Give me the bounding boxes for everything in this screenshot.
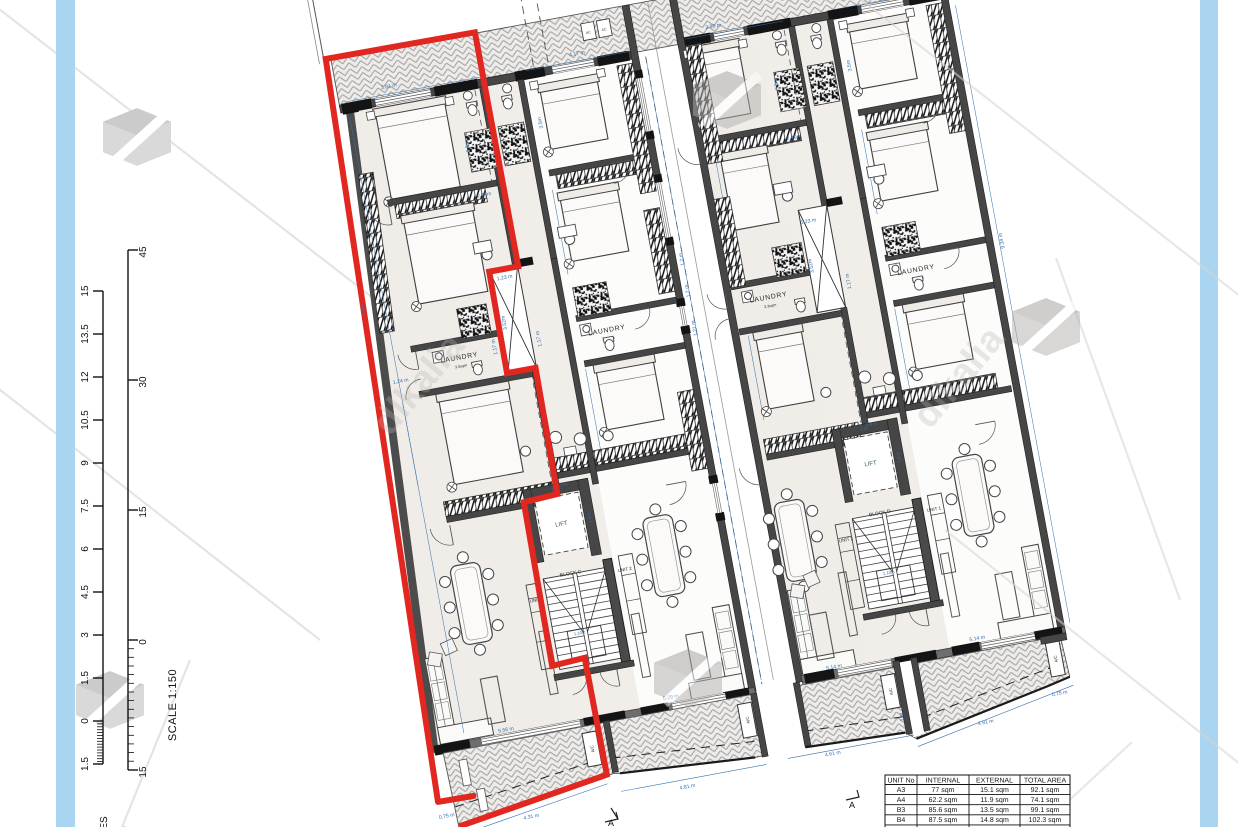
svg-text:12: 12	[80, 371, 91, 383]
svg-text:45: 45	[138, 246, 149, 258]
svg-text:A: A	[849, 800, 855, 810]
svg-text:4.5: 4.5	[80, 585, 91, 599]
svg-text:0: 0	[80, 718, 91, 724]
svg-text:74.1 sqm: 74.1 sqm	[1031, 797, 1060, 804]
svg-text:11.9 sqm: 11.9 sqm	[980, 797, 1008, 804]
svg-text:SCALE 1:150: SCALE 1:150	[167, 669, 179, 741]
svg-text:30: 30	[138, 376, 149, 388]
svg-text:14.8 sqm: 14.8 sqm	[980, 817, 1009, 824]
svg-text:A4: A4	[897, 797, 906, 804]
svg-text:15: 15	[138, 506, 149, 518]
svg-text:3: 3	[80, 632, 91, 638]
svg-text:METRES: METRES	[99, 816, 110, 827]
svg-text:EXTERNAL: EXTERNAL	[976, 777, 1013, 784]
svg-text:0: 0	[138, 639, 149, 645]
svg-text:1.5: 1.5	[80, 757, 91, 771]
svg-text:TOTAL AREA: TOTAL AREA	[1024, 777, 1067, 784]
svg-text:85.6 sqm: 85.6 sqm	[929, 807, 958, 814]
svg-text:87.5 sqm: 87.5 sqm	[929, 817, 958, 824]
svg-text:99.1 sqm: 99.1 sqm	[1031, 807, 1060, 814]
svg-text:15: 15	[138, 766, 149, 778]
svg-text:7.5: 7.5	[80, 499, 91, 513]
svg-text:15.1 sqm: 15.1 sqm	[980, 787, 1009, 794]
svg-text:B4: B4	[897, 817, 906, 824]
svg-text:92.1 sqm: 92.1 sqm	[1031, 787, 1060, 794]
svg-text:6: 6	[80, 546, 91, 552]
svg-text:13.5 sqm: 13.5 sqm	[980, 807, 1009, 814]
svg-text:A3: A3	[897, 787, 906, 794]
svg-text:9: 9	[80, 460, 91, 466]
svg-text:B3: B3	[897, 807, 906, 814]
svg-text:15: 15	[80, 285, 91, 297]
svg-text:1.5: 1.5	[80, 671, 91, 685]
svg-text:77 sqm: 77 sqm	[932, 787, 955, 794]
svg-text:A: A	[608, 818, 614, 827]
svg-text:13.5: 13.5	[80, 324, 91, 344]
svg-text:INTERNAL: INTERNAL	[926, 777, 961, 784]
svg-text:10.5: 10.5	[80, 410, 91, 430]
svg-text:102.3 sqm: 102.3 sqm	[1029, 817, 1062, 824]
svg-text:UNIT No: UNIT No	[887, 777, 914, 784]
svg-text:62.2 sqm: 62.2 sqm	[929, 797, 958, 804]
